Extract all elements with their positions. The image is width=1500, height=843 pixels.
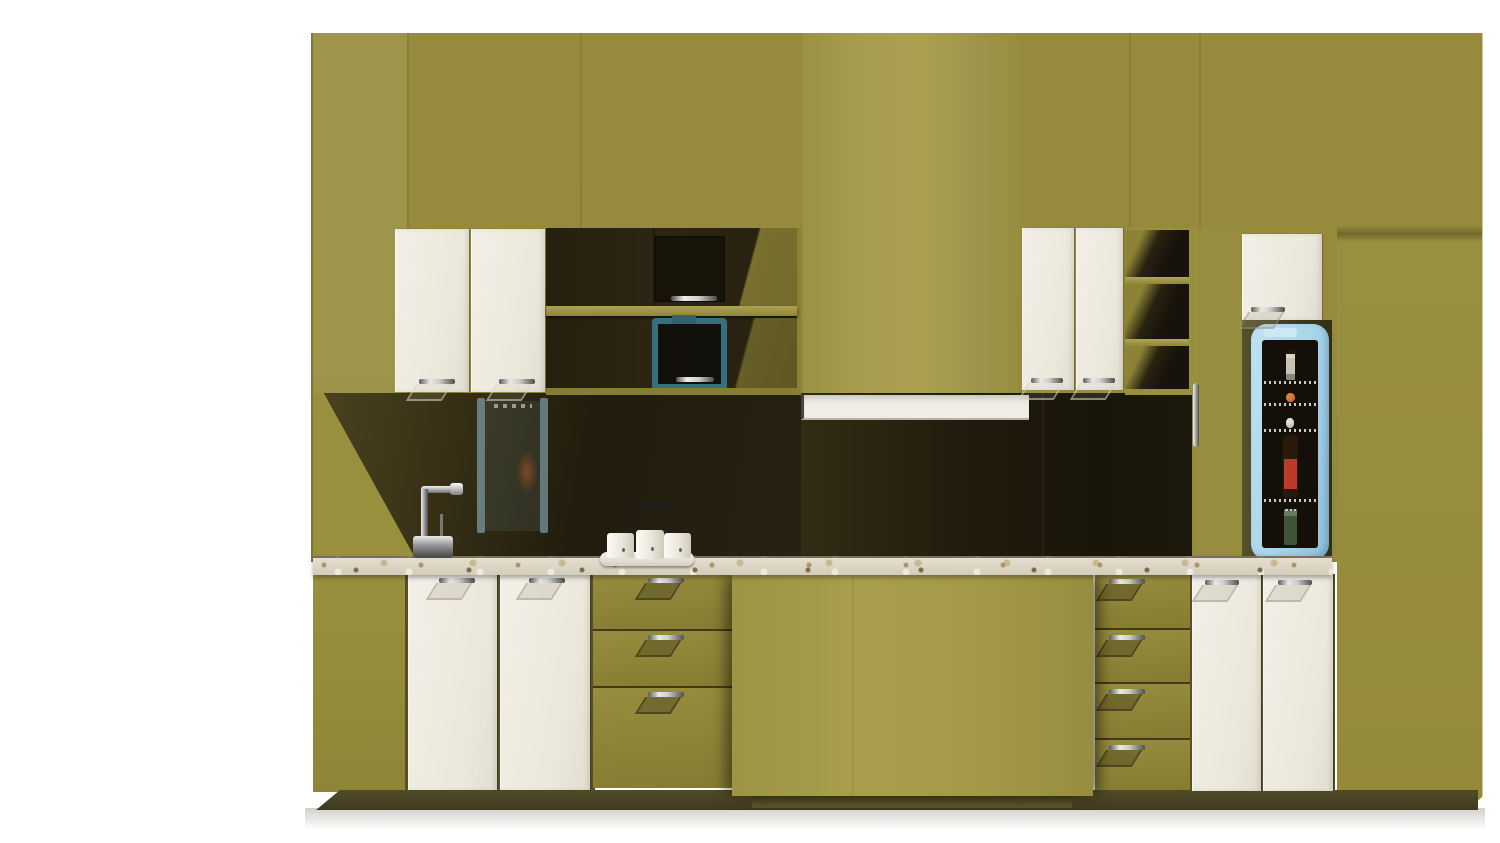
backsplash-glass-shadow [314,393,801,560]
fridge-handle [1263,328,1297,337]
fridge-shelf-row [1265,433,1315,497]
fridge-shelf-row [1265,408,1315,428]
wall-cabinet-door [1022,228,1074,390]
panel-shadow [1337,225,1482,241]
fridge-shelf-edge [1264,403,1316,406]
fridge-shelf-edge [1264,429,1316,432]
panel-highlight [313,33,407,395]
drawer-handle [1109,745,1145,750]
gray-bottle-icon [1286,350,1295,380]
door-handle [1083,378,1115,383]
base-end-panel [313,575,408,792]
fridge-top-door [1242,234,1322,320]
coffee-machine-handle [676,377,714,382]
faucet-base [413,536,453,558]
cabinet-shelf [546,306,797,316]
base-cabinet-door [500,574,590,790]
orange-icon [1286,393,1295,402]
drawer [1095,630,1190,682]
wall-cabinet-door [1076,228,1123,390]
fridge-shelf-row [1265,346,1315,380]
door-handle [439,578,475,583]
drawer-handle [648,578,684,583]
kitchen-render [0,0,1500,843]
drawer-handle [648,692,684,697]
drawer [1095,684,1190,738]
drawer [593,688,733,788]
open-shelf-unit [1125,228,1197,395]
wall-cabinet-door [471,229,545,392]
backsplash-left [314,393,801,560]
jar-icon [1284,509,1297,545]
drawer-handle [1109,579,1145,584]
red-bottle-icon [1283,435,1298,497]
island-seam [852,573,854,796]
range-hood [801,395,1029,420]
countertop [313,556,1332,575]
fridge-reflection-edge [477,398,485,533]
range-hood-chimney [803,33,1018,398]
cup [607,533,634,558]
wall-cabinet-door [395,229,469,392]
beverage-fridge [1251,324,1329,560]
glass-reflection [700,228,797,306]
shelf-edge [1125,277,1189,284]
fridge-shelf-edge [1264,499,1316,502]
fridge-shelf-row [1265,503,1315,545]
shelf-cubby [1125,284,1189,339]
kettle-body [636,530,664,559]
door-handle [1205,580,1239,585]
drawer-handle [1109,689,1145,694]
drawer [593,631,733,686]
drawer [1095,574,1190,628]
island-toe-shadow [752,796,1072,808]
shelf-edge [1125,339,1189,346]
faucet-head [450,483,463,495]
base-cabinet-door [1192,574,1261,791]
fridge-glass-door [1262,340,1318,548]
coffee-machine-top [672,315,696,324]
drawer [593,574,733,629]
door-handle [1031,378,1063,383]
kitchen-island [732,573,1093,796]
base-cabinet-door [1263,574,1333,791]
backsplash-seam [1042,393,1044,560]
pantry-handle [1193,383,1199,447]
cup [664,533,691,558]
pantry-column [1197,228,1242,562]
reflection-bottles [516,450,538,494]
door-handle [499,379,535,384]
shelf-cubby [1125,346,1189,389]
fridge-reflection-edge [540,398,548,533]
tall-end-panel [1337,33,1483,808]
drawer-handle [1109,635,1145,640]
door-handle [529,578,565,583]
door-handle [1278,580,1312,585]
fridge-shelf-row [1265,386,1315,402]
door-handle [419,379,455,384]
drawer [1095,740,1190,790]
appliance-handle [671,296,717,301]
floor-shadow [305,808,1485,830]
faucet-body [421,489,428,539]
fridge-shelf-edge [1264,381,1316,384]
cabinet-bottom-rail [546,388,797,395]
shelf-cubby [1125,230,1189,277]
base-cabinet-door [408,574,497,790]
drawer-handle [648,635,684,640]
door-handle [1251,307,1285,312]
faucet-lever [440,514,443,538]
reflection-highlights [494,404,532,408]
glass-display-cabinet [546,228,801,395]
egg-icon [1286,418,1294,428]
